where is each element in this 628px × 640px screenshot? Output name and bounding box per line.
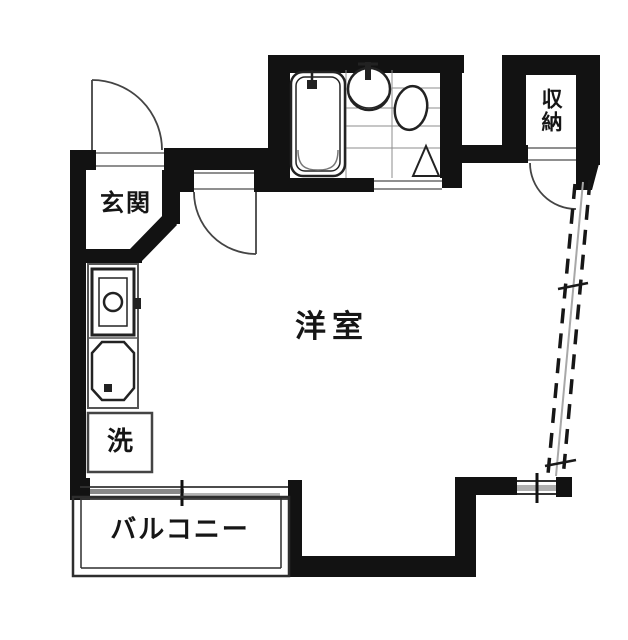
entrance-bottom-wall bbox=[84, 249, 142, 263]
bathroom-left-wall bbox=[268, 55, 290, 192]
storage-label: 収納 bbox=[535, 76, 567, 146]
bathroom-right-wall bbox=[440, 55, 462, 188]
top-wall-left-jamb bbox=[70, 150, 96, 170]
corner-window bbox=[517, 473, 556, 503]
balcony-sliding-door bbox=[80, 480, 288, 506]
diagonal-window-wall bbox=[545, 180, 590, 478]
sash-left bbox=[90, 489, 184, 494]
floor-plan: 玄関 洋室 収納 洗 バルコニー bbox=[0, 0, 628, 640]
bathtub bbox=[291, 70, 345, 176]
bottom-outer-wall bbox=[288, 556, 476, 577]
entry-door-arc bbox=[92, 80, 162, 150]
north-wall-to-storage bbox=[462, 145, 528, 163]
entry-door bbox=[92, 80, 162, 150]
storage-right-wall bbox=[576, 55, 600, 165]
laundry-label: 洗 bbox=[94, 426, 146, 460]
kitchen-sink bbox=[92, 342, 134, 400]
balcony-label: バルコニー bbox=[86, 513, 274, 549]
storage-door bbox=[530, 163, 576, 209]
left-outer-wall bbox=[70, 150, 86, 500]
room-door bbox=[194, 192, 256, 254]
entrance-label: 玄関 bbox=[88, 188, 164, 220]
sink-drain bbox=[104, 384, 112, 392]
bathroom-bottom-wall bbox=[288, 178, 376, 192]
stove-unit bbox=[92, 269, 141, 335]
window-end-block bbox=[556, 477, 572, 497]
bottom-right-top-wall bbox=[455, 477, 517, 495]
bathroom-triangle bbox=[413, 146, 439, 176]
storage-door-arc bbox=[530, 163, 576, 209]
toilet bbox=[391, 84, 430, 133]
room-door-arc bbox=[194, 192, 256, 254]
room-door-left-jamb bbox=[162, 170, 194, 192]
kitchen-unit bbox=[88, 264, 141, 408]
bathroom bbox=[291, 62, 440, 178]
bathroom-sliding-door bbox=[374, 178, 442, 192]
storage-left-wall bbox=[502, 55, 526, 147]
stove-knob bbox=[134, 298, 141, 309]
western-room-label: 洋室 bbox=[268, 306, 396, 348]
